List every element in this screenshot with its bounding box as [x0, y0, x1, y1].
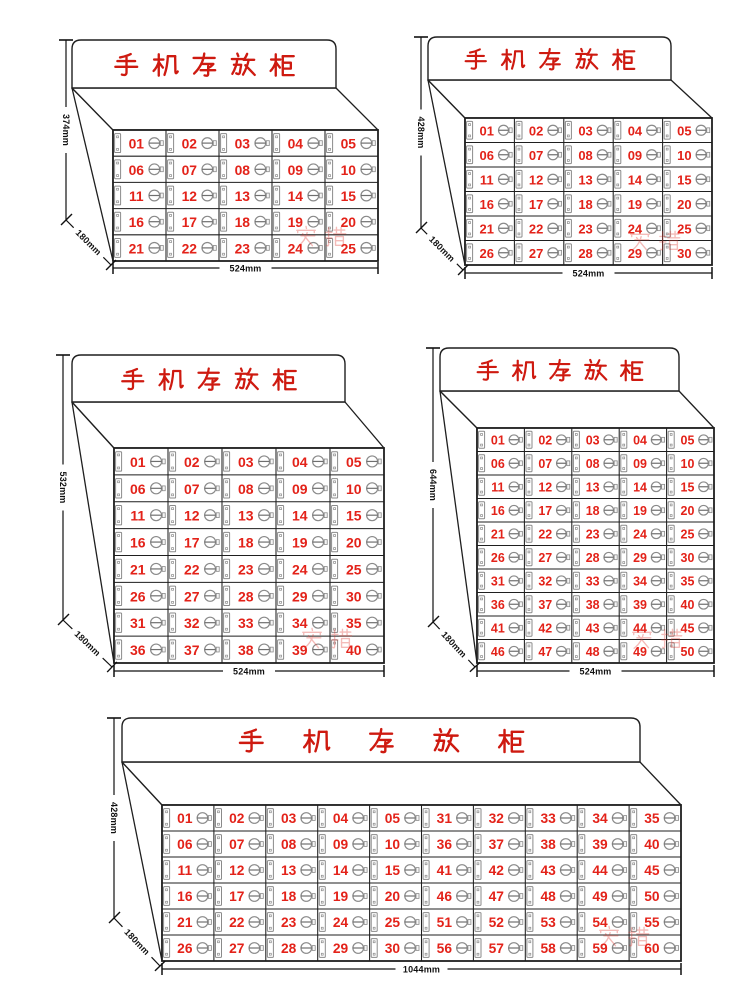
cell-number: 13 [238, 508, 254, 524]
cell-number: 26 [480, 246, 494, 261]
hinge-icon [216, 887, 222, 906]
dimension-depth-label: 180mm [439, 629, 468, 659]
hinge-icon [527, 835, 533, 854]
cell-number: 10 [681, 457, 695, 471]
cell-number: 30 [385, 941, 401, 956]
cell-number: 11 [178, 863, 193, 878]
dimension-depth-label: 180mm [74, 228, 104, 258]
cell-number: 12 [229, 863, 245, 878]
hinge-icon [216, 913, 222, 932]
cell-number: 34 [592, 811, 608, 826]
cell-number: 27 [184, 588, 200, 604]
hinge-icon [631, 809, 637, 828]
hinge-icon [475, 835, 481, 854]
cell-number: 02 [184, 454, 200, 470]
cell-number: 08 [235, 162, 251, 178]
hinge-icon [615, 146, 621, 164]
hinge-icon [170, 640, 176, 659]
cell-number: 34 [633, 574, 647, 588]
cell-number: 29 [333, 941, 349, 956]
hinge-icon [631, 887, 637, 906]
cell-number: 30 [681, 551, 695, 565]
cell-number: 05 [346, 454, 362, 470]
hinge-icon [168, 212, 174, 231]
cell-number: 45 [644, 863, 660, 878]
cell-number: 20 [341, 214, 357, 230]
hinge-icon [116, 506, 122, 525]
cell-number: 05 [385, 811, 401, 826]
locker-grid: 0102030405313233343506070809103637383940… [162, 805, 681, 961]
width-dimension: 524mm [113, 262, 378, 274]
hinge-icon [274, 160, 280, 179]
hinge-icon [565, 170, 571, 188]
cell-number: 28 [586, 551, 600, 565]
hinge-icon [170, 586, 176, 605]
cell-number: 49 [592, 889, 608, 904]
cell-number: 20 [346, 535, 362, 551]
cell-number: 27 [229, 941, 245, 956]
cabinet-diagrams: 手机存放柜 0102030405060708091011121314151617… [0, 0, 750, 1004]
cell-number: 05 [341, 136, 357, 152]
hinge-icon [221, 134, 227, 153]
cell-number: 15 [341, 188, 357, 204]
hinge-icon [579, 861, 585, 880]
cell-number: 05 [681, 433, 695, 447]
cell-number: 36 [437, 837, 453, 852]
hinge-icon [170, 532, 176, 551]
hinge-icon [274, 238, 280, 257]
cell-number: 01 [480, 123, 494, 138]
hinge-icon [267, 835, 273, 854]
hinge-icon [615, 170, 621, 188]
cell-number: 19 [628, 197, 642, 212]
hinge-icon [221, 238, 227, 257]
cell-number: 21 [177, 915, 193, 930]
locker-grid: 0102030405060708091011121314151617181920… [465, 118, 712, 265]
cell-number: 33 [238, 615, 254, 631]
cell-number: 13 [586, 480, 600, 494]
cell-number: 39 [633, 598, 647, 612]
cell-number: 13 [578, 172, 592, 187]
cell-number: 03 [281, 811, 297, 826]
hinge-icon [164, 913, 170, 932]
hinge-icon [267, 913, 273, 932]
width-dimension: 524mm [114, 665, 384, 677]
hinge-icon [664, 195, 670, 213]
hinge-icon [332, 506, 338, 525]
cell-number: 37 [184, 642, 200, 658]
hinge-icon [115, 212, 121, 231]
cell-number: 40 [346, 642, 362, 658]
cell-number: 16 [480, 197, 494, 212]
cell-number: 01 [177, 811, 193, 826]
cell-number: 54 [592, 915, 608, 930]
hinge-icon [327, 186, 333, 205]
cell-number: 50 [681, 645, 695, 659]
cell-number: 24 [333, 915, 349, 930]
hinge-icon [332, 586, 338, 605]
hinge-icon [475, 913, 481, 932]
cell-number: 14 [288, 188, 304, 204]
hinge-icon [423, 809, 429, 828]
cell-number: 10 [385, 837, 401, 852]
dimension-height-label: 428mm [416, 116, 426, 148]
hinge-icon [516, 244, 522, 262]
cell-number: 44 [633, 621, 647, 635]
cell-number: 11 [491, 480, 504, 494]
hinge-icon [327, 160, 333, 179]
cell-number: 17 [229, 889, 245, 904]
hinge-icon [467, 195, 473, 213]
hinge-icon [319, 861, 325, 880]
height-dimension: 532mm [56, 355, 70, 625]
hinge-icon [116, 640, 122, 659]
cell-number: 10 [341, 162, 357, 178]
hinge-icon [170, 452, 176, 471]
hinge-icon [224, 613, 230, 632]
hinge-icon [221, 160, 227, 179]
hinge-icon [579, 809, 585, 828]
locker-grid: 0102030405060708091011121314151617181920… [477, 428, 714, 663]
cell-number: 21 [130, 561, 146, 577]
cell-number: 16 [129, 214, 145, 230]
hinge-icon [115, 134, 121, 153]
cell-number: 25 [385, 915, 401, 930]
dimension-width-label: 1044mm [403, 965, 440, 975]
hinge-icon [224, 640, 230, 659]
hinge-icon [467, 244, 473, 262]
cell-number: 18 [586, 504, 600, 518]
hinge-icon [278, 532, 284, 551]
cell-number: 01 [491, 433, 505, 447]
hinge-icon [371, 861, 377, 880]
cell-number: 09 [333, 837, 349, 852]
cell-number: 35 [346, 615, 362, 631]
hinge-icon [267, 887, 273, 906]
cell-number: 39 [292, 642, 308, 658]
hinge-icon [332, 479, 338, 498]
cell-number: 15 [677, 172, 691, 187]
dimension-width-label: 524mm [233, 667, 265, 677]
cell-number: 37 [538, 598, 552, 612]
cell-number: 08 [238, 481, 254, 497]
cell-number: 31 [130, 615, 146, 631]
cell-number: 02 [529, 123, 543, 138]
height-dimension: 644mm [426, 348, 440, 627]
hinge-icon [319, 913, 325, 932]
hinge-icon [115, 160, 121, 179]
cell-number: 01 [130, 454, 146, 470]
hinge-icon [579, 913, 585, 932]
cell-number: 28 [281, 941, 297, 956]
hinge-icon [278, 613, 284, 632]
cabinet-40-cell: 手机存放柜 0102030405060708091011121314151617… [56, 355, 384, 677]
hinge-icon [579, 887, 585, 906]
cell-number: 11 [130, 508, 145, 524]
locker-grid: 0102030405060708091011121314151617181920… [114, 448, 384, 663]
cell-number: 19 [633, 504, 647, 518]
hinge-icon [527, 913, 533, 932]
cell-number: 18 [281, 889, 297, 904]
cell-number: 24 [633, 527, 647, 541]
cell-number: 16 [130, 535, 146, 551]
cell-number: 13 [281, 863, 297, 878]
hinge-icon [565, 244, 571, 262]
hinge-icon [565, 219, 571, 237]
cell-number: 07 [529, 148, 543, 163]
cell-number: 06 [129, 162, 145, 178]
cell-number: 06 [491, 457, 505, 471]
hinge-icon [527, 861, 533, 880]
hinge-icon [467, 219, 473, 237]
dimension-depth-label: 180mm [427, 234, 457, 264]
cell-number: 58 [540, 941, 556, 956]
cell-number: 38 [238, 642, 254, 658]
height-dimension: 374mm [59, 40, 73, 225]
cell-number: 57 [489, 941, 505, 956]
cell-number: 22 [182, 240, 198, 256]
cell-number: 42 [538, 621, 552, 635]
cell-number: 14 [333, 863, 349, 878]
hinge-icon [170, 479, 176, 498]
hinge-icon [116, 559, 122, 578]
cell-number: 16 [491, 504, 505, 518]
cell-number: 08 [281, 837, 297, 852]
cell-number: 45 [681, 621, 695, 635]
cell-number: 02 [229, 811, 245, 826]
hinge-icon [170, 613, 176, 632]
cell-number: 31 [491, 574, 505, 588]
cell-number: 07 [229, 837, 245, 852]
width-dimension: 1044mm [162, 963, 681, 975]
hinge-icon [115, 186, 121, 205]
cell-number: 21 [491, 527, 505, 541]
cell-number: 38 [586, 598, 600, 612]
hinge-icon [267, 939, 273, 958]
cell-number: 07 [182, 162, 198, 178]
hinge-icon [475, 939, 481, 958]
hinge-icon [527, 939, 533, 958]
cell-number: 04 [288, 136, 304, 152]
cell-number: 04 [633, 433, 647, 447]
cell-number: 11 [480, 172, 494, 187]
cell-number: 21 [129, 240, 145, 256]
hinge-icon [170, 559, 176, 578]
hinge-icon [516, 219, 522, 237]
cell-number: 33 [540, 811, 556, 826]
cell-number: 30 [677, 246, 691, 261]
cabinet-top-panel [122, 762, 681, 805]
cell-number: 23 [281, 915, 297, 930]
cell-number: 28 [578, 246, 592, 261]
cell-number: 04 [628, 123, 643, 138]
hinge-icon [278, 452, 284, 471]
hinge-icon [164, 835, 170, 854]
cell-number: 47 [538, 645, 552, 659]
height-dimension: 428mm [414, 37, 428, 233]
cabinet-25-cell: 手机存放柜 0102030405060708091011121314151617… [59, 40, 378, 274]
hinge-icon [224, 506, 230, 525]
hinge-icon [278, 586, 284, 605]
cell-number: 30 [346, 588, 362, 604]
hinge-icon [516, 195, 522, 213]
hinge-icon [423, 861, 429, 880]
hinge-icon [423, 913, 429, 932]
cell-number: 15 [681, 480, 695, 494]
hinge-icon [224, 452, 230, 471]
hinge-icon [216, 861, 222, 880]
hinge-icon [116, 613, 122, 632]
cell-number: 19 [333, 889, 349, 904]
cabinet-50-cell: 手机存放柜 0102030405060708091011121314151617… [426, 348, 714, 677]
hinge-icon [615, 195, 621, 213]
cell-number: 56 [437, 941, 453, 956]
cell-number: 36 [130, 642, 146, 658]
cell-number: 46 [437, 889, 453, 904]
cabinet-60-cell: 手机存放柜 0102030405313233343506070809103637… [107, 718, 681, 975]
cell-number: 06 [480, 148, 494, 163]
cell-number: 15 [385, 863, 401, 878]
hinge-icon [516, 170, 522, 188]
hinge-icon [332, 559, 338, 578]
cell-number: 41 [491, 621, 505, 635]
cell-number: 08 [578, 148, 592, 163]
cell-number: 29 [292, 588, 308, 604]
cell-number: 26 [130, 588, 146, 604]
hinge-icon [516, 121, 522, 139]
cell-number: 26 [491, 551, 505, 565]
cell-number: 05 [677, 123, 691, 138]
hinge-icon [371, 887, 377, 906]
hinge-icon [274, 134, 280, 153]
hinge-icon [224, 532, 230, 551]
cabinet-top-panel [440, 391, 714, 428]
cell-number: 21 [480, 221, 494, 236]
cell-number: 32 [489, 811, 505, 826]
cell-number: 12 [184, 508, 200, 524]
cell-number: 17 [184, 535, 200, 551]
cell-number: 20 [681, 504, 695, 518]
cell-number: 03 [238, 454, 254, 470]
cell-number: 18 [238, 535, 254, 551]
cell-number: 22 [538, 527, 552, 541]
cell-number: 01 [129, 136, 145, 152]
hinge-icon [164, 887, 170, 906]
hinge-icon [168, 238, 174, 257]
hinge-icon [224, 559, 230, 578]
hinge-icon [164, 809, 170, 828]
hinge-icon [224, 479, 230, 498]
cell-number: 17 [182, 214, 198, 230]
cabinet-30-cell: 手机存放柜 0102030405060708091011121314151617… [414, 37, 712, 279]
cell-number: 12 [182, 188, 198, 204]
cell-number: 02 [538, 433, 552, 447]
cell-number: 06 [130, 481, 146, 497]
cell-number: 44 [592, 863, 608, 878]
cell-number: 27 [538, 551, 552, 565]
cell-number: 14 [633, 480, 647, 494]
cell-number: 03 [235, 136, 251, 152]
cell-number: 51 [437, 915, 453, 930]
cell-number: 25 [346, 561, 362, 577]
cell-number: 36 [491, 598, 505, 612]
cell-number: 28 [238, 588, 254, 604]
cell-number: 37 [489, 837, 505, 852]
cell-number: 32 [538, 574, 552, 588]
hinge-icon [278, 506, 284, 525]
cell-number: 53 [540, 915, 556, 930]
cell-number: 02 [182, 136, 198, 152]
hinge-icon [164, 939, 170, 958]
hinge-icon [565, 195, 571, 213]
hinge-icon [216, 835, 222, 854]
cell-number: 41 [437, 863, 453, 878]
cell-number: 12 [529, 172, 543, 187]
cell-number: 59 [592, 941, 608, 956]
cell-number: 07 [184, 481, 200, 497]
cabinet-top-panel [72, 88, 378, 130]
cell-number: 24 [292, 561, 308, 577]
cabinet-top-panel [428, 80, 712, 118]
cell-number: 43 [540, 863, 556, 878]
hinge-icon [224, 586, 230, 605]
cell-number: 23 [235, 240, 251, 256]
height-dimension: 428mm [107, 718, 121, 923]
cell-number: 35 [681, 574, 695, 588]
cell-number: 17 [538, 504, 552, 518]
cell-number: 22 [529, 221, 543, 236]
cell-number: 55 [644, 915, 660, 930]
hinge-icon [615, 121, 621, 139]
cell-number: 38 [540, 837, 556, 852]
hinge-icon [631, 835, 637, 854]
hinge-icon [170, 506, 176, 525]
width-dimension: 524mm [477, 665, 714, 677]
hinge-icon [565, 121, 571, 139]
hinge-icon [116, 452, 122, 471]
cell-number: 34 [292, 615, 308, 631]
hinge-icon [527, 887, 533, 906]
cell-number: 20 [385, 889, 401, 904]
cell-number: 33 [586, 574, 600, 588]
width-dimension: 524mm [465, 267, 712, 279]
hinge-icon [168, 160, 174, 179]
hinge-icon [423, 835, 429, 854]
cell-number: 40 [644, 837, 660, 852]
cell-number: 48 [586, 645, 600, 659]
hinge-icon [423, 939, 429, 958]
cell-number: 42 [489, 863, 505, 878]
hinge-icon [327, 134, 333, 153]
dimension-depth-label: 180mm [122, 927, 151, 957]
hinge-icon [168, 134, 174, 153]
cell-number: 27 [529, 246, 543, 261]
cell-number: 09 [628, 148, 642, 163]
cell-number: 23 [578, 221, 592, 236]
cell-number: 47 [489, 889, 505, 904]
cell-number: 22 [184, 561, 200, 577]
hinge-icon [116, 586, 122, 605]
cabinet-side-panel [440, 391, 477, 663]
poster: 手机存放柜 0102030405060708091011121314151617… [0, 0, 750, 1004]
cell-number: 08 [586, 457, 600, 471]
cell-number: 14 [292, 508, 308, 524]
cell-number: 20 [677, 197, 691, 212]
hinge-icon [516, 146, 522, 164]
cell-number: 23 [586, 527, 600, 541]
cell-number: 03 [578, 123, 592, 138]
cell-number: 14 [628, 172, 643, 187]
